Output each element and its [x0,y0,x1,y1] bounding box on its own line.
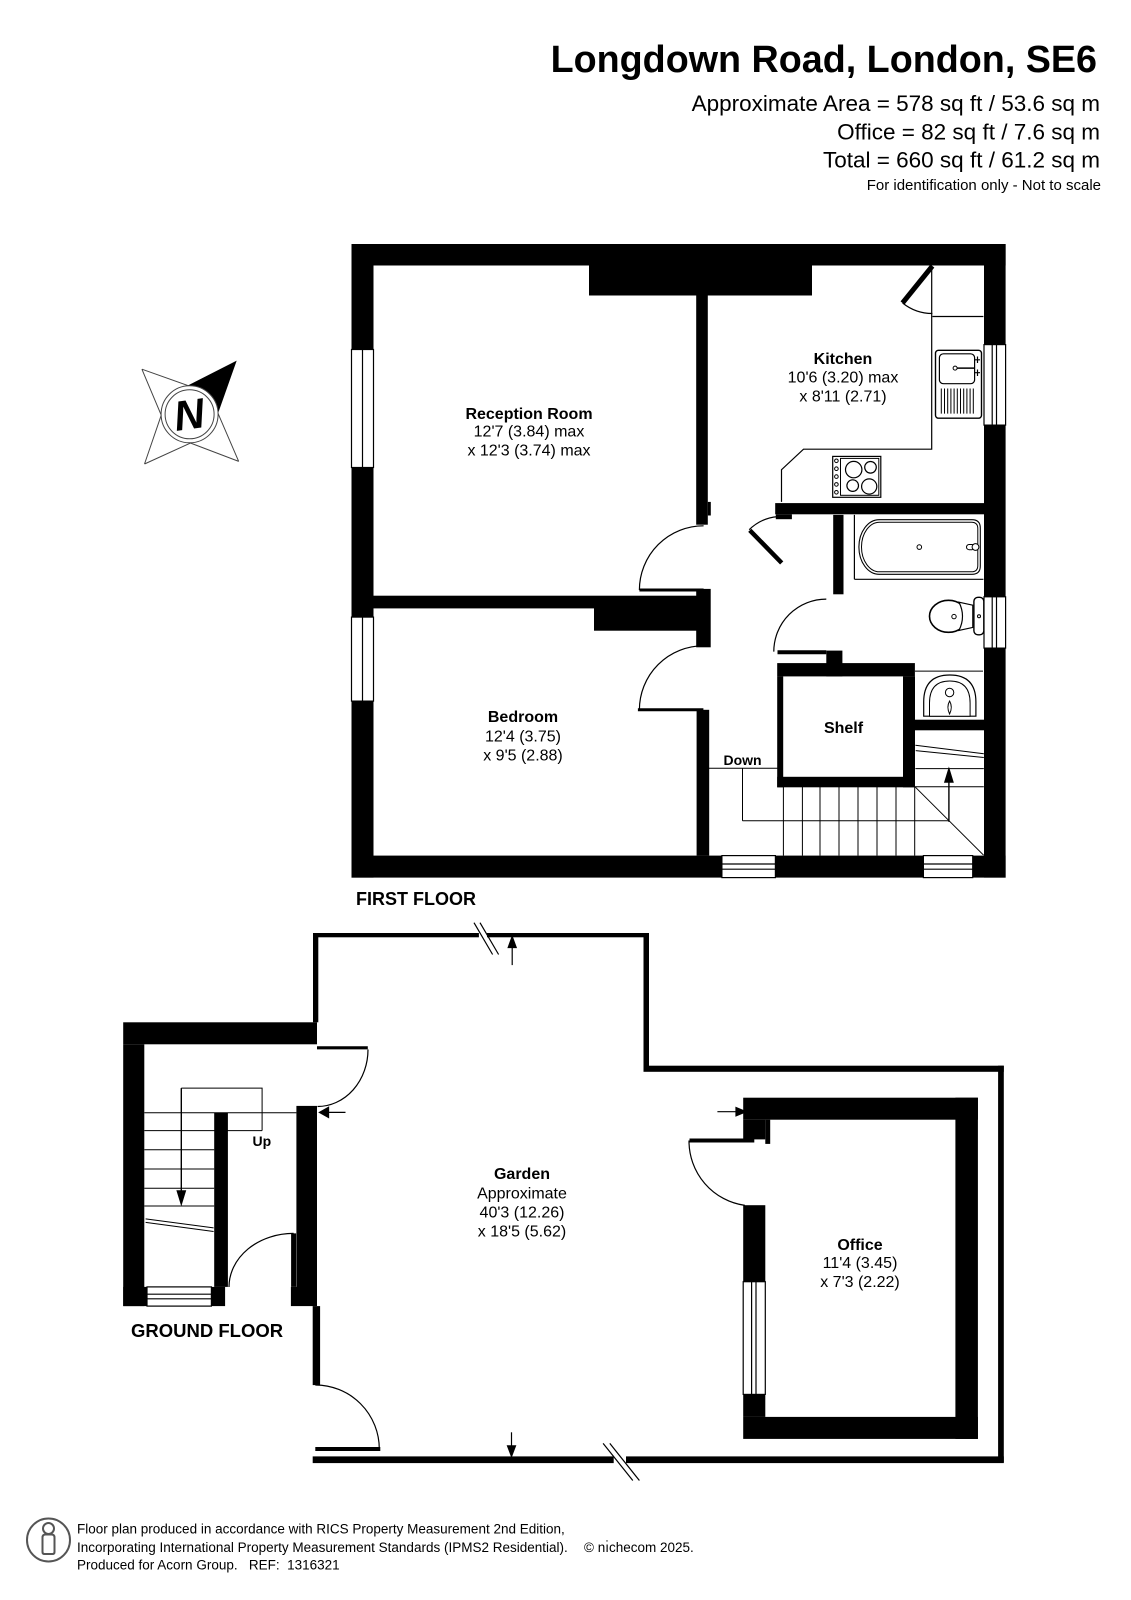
svg-text:Incorporating International Pr: Incorporating International Property Mea… [77,1540,568,1555]
svg-text:© nı̇checom 2025.: © nı̇checom 2025. [584,1540,694,1555]
svg-text:x 8'11 (2.71): x 8'11 (2.71) [799,389,886,406]
svg-text:x 7'3 (2.22): x 7'3 (2.22) [820,1274,900,1291]
svg-text:GROUND FLOOR: GROUND FLOOR [131,1320,283,1341]
svg-text:Reception Room: Reception Room [465,406,592,423]
svg-text:Up: Up [253,1133,272,1149]
svg-text:x 12'3 (3.74) max: x 12'3 (3.74) max [467,443,590,460]
svg-text:x 9'5 (2.88): x 9'5 (2.88) [483,748,563,765]
svg-text:Garden: Garden [494,1166,550,1183]
svg-text:Floor plan produced in accorda: Floor plan produced in accordance with R… [77,1522,565,1537]
svg-text:FIRST FLOOR: FIRST FLOOR [356,889,476,909]
svg-text:11'4 (3.45): 11'4 (3.45) [823,1255,898,1272]
svg-text:Total = 660 sq ft / 61.2 sq m: Total = 660 sq ft / 61.2 sq m [823,148,1100,173]
svg-text:40'3 (12.26): 40'3 (12.26) [480,1205,565,1222]
svg-text:10'6 (3.20) max: 10'6 (3.20) max [788,370,899,387]
svg-text:Kitchen: Kitchen [814,351,873,368]
svg-text:Office: Office [837,1237,882,1254]
svg-text:Produced for Acorn Group. RE: Produced for Acorn Group. REF: 1316321 [77,1557,340,1572]
svg-text:x 18'5 (5.62): x 18'5 (5.62) [478,1224,566,1241]
svg-text:Approximate Area = 578 sq ft /: Approximate Area = 578 sq ft / 53.6 sq m [692,91,1100,116]
svg-text:Down: Down [724,752,762,768]
svg-text:For identification only - Not: For identification only - Not to scale [867,177,1101,194]
svg-text:Office = 82 sq ft / 7.6 sq m: Office = 82 sq ft / 7.6 sq m [837,120,1100,145]
svg-text:Bedroom: Bedroom [488,709,558,726]
svg-text:12'4 (3.75): 12'4 (3.75) [485,729,561,746]
svg-text:12'7 (3.84) max: 12'7 (3.84) max [474,424,585,441]
svg-text:Approximate: Approximate [477,1186,567,1203]
svg-text:Shelf: Shelf [824,720,864,737]
svg-text:Longdown Road, London, SE6: Longdown Road, London, SE6 [551,38,1097,80]
